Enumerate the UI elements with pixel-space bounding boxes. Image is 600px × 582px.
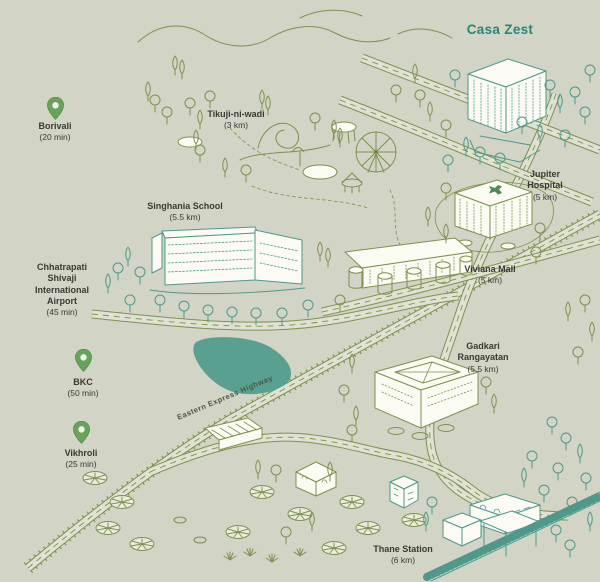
singhania-school-building (150, 227, 305, 294)
location-map: Casa Zest Borivali (20 min) Chhatrapati … (0, 0, 600, 582)
landmark-name: Viviana Mall (450, 264, 530, 275)
carousel-icon (342, 173, 362, 193)
landmark-distance: (5.5 km) (447, 364, 519, 375)
landmark-name: Tikuji-ni-wadi (186, 109, 286, 120)
transit-time: (45 min) (27, 307, 97, 318)
landmark-distance: (5 km) (450, 275, 530, 286)
landmark-label-jupiter: Jupiter Hospital (5 km) (517, 169, 573, 202)
transit-label-bkc: BKC (50 min) (43, 377, 123, 399)
landmark-label-tikuji: Tikuji-ni-wadi (3 km) (186, 109, 286, 131)
trees-teal (106, 65, 595, 557)
transit-label-airport: Chhatrapati Shivaji International Airpor… (27, 262, 97, 318)
landmark-distance: (3 km) (186, 120, 286, 131)
amusement-park (178, 122, 396, 193)
landmark-name: Singhania School (125, 201, 245, 212)
landmark-label-gadkari: Gadkari Rangayatan (5.5 km) (447, 341, 519, 374)
landmark-name: Jupiter Hospital (517, 169, 573, 192)
landmark-distance: (5 km) (517, 192, 573, 203)
project-title: Casa Zest (452, 22, 548, 38)
ufo-ride-icon (332, 122, 356, 143)
hills (138, 10, 452, 46)
small-building (390, 476, 418, 508)
transit-name: Vikhroli (41, 448, 121, 459)
landmark-distance: (5.5 km) (125, 212, 245, 223)
transit-name: Chhatrapati Shivaji International Airpor… (27, 262, 97, 307)
transit-time: (25 min) (41, 459, 121, 470)
thane-station-building (425, 492, 600, 581)
landmark-label-singhania: Singhania School (5.5 km) (125, 201, 245, 223)
landmark-distance: (6 km) (353, 555, 453, 566)
bkc-pin-icon (75, 349, 92, 372)
transit-time: (20 min) (15, 132, 95, 143)
landmark-label-thane: Thane Station (6 km) (353, 544, 453, 566)
transit-name: Borivali (15, 121, 95, 132)
vikhroli-pin-icon (73, 421, 90, 444)
transit-name: BKC (43, 377, 123, 388)
transit-time: (50 min) (43, 388, 123, 399)
landmark-label-viviana: Viviana Mall (5 km) (450, 264, 530, 286)
landmark-name: Gadkari Rangayatan (447, 341, 519, 364)
ferris-wheel-icon (356, 132, 396, 172)
transit-label-borivali: Borivali (20 min) (15, 121, 95, 143)
landmark-name: Thane Station (353, 544, 453, 555)
borivali-pin-icon (47, 97, 64, 120)
transit-label-vikhroli: Vikhroli (25 min) (41, 448, 121, 470)
